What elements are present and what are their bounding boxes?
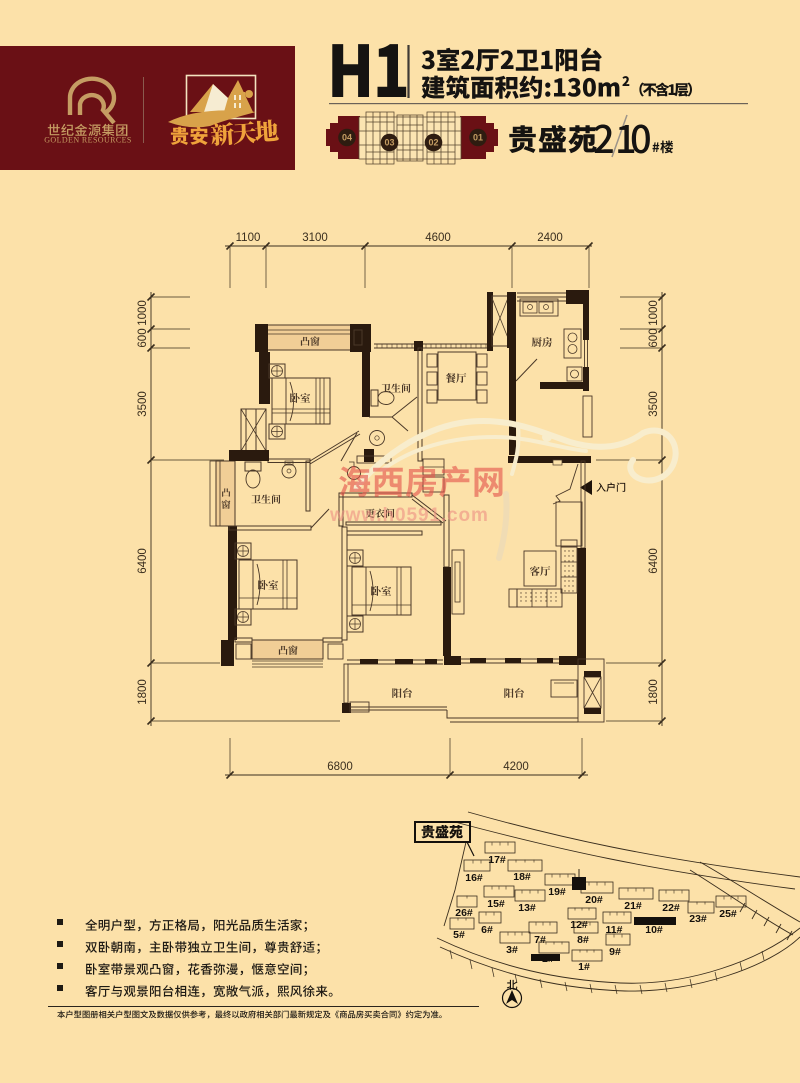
svg-text:1000: 1000 bbox=[137, 300, 149, 326]
svg-text:3100: 3100 bbox=[302, 232, 328, 244]
svg-text:16#: 16# bbox=[465, 872, 483, 884]
svg-text:600: 600 bbox=[648, 328, 660, 347]
svg-text:2400: 2400 bbox=[537, 232, 563, 244]
svg-text:www.h0591.com: www.h0591.com bbox=[329, 505, 489, 526]
svg-text:1800: 1800 bbox=[137, 679, 149, 705]
svg-text:1#: 1# bbox=[578, 961, 590, 973]
svg-text:600: 600 bbox=[137, 328, 149, 347]
svg-text:13#: 13# bbox=[518, 902, 536, 914]
svg-text:02: 02 bbox=[428, 138, 438, 148]
svg-text:3500: 3500 bbox=[648, 391, 660, 417]
svg-text:9#: 9# bbox=[609, 946, 621, 958]
svg-text:20#: 20# bbox=[585, 894, 603, 906]
svg-text:19#: 19# bbox=[548, 886, 566, 898]
svg-text:10#: 10# bbox=[645, 924, 663, 936]
svg-text:21#: 21# bbox=[624, 900, 642, 912]
svg-text:17#: 17# bbox=[488, 854, 506, 866]
svg-text:1100: 1100 bbox=[236, 232, 261, 244]
svg-text:2#: 2# bbox=[542, 953, 554, 965]
svg-text:1000: 1000 bbox=[648, 300, 660, 326]
svg-text:6400: 6400 bbox=[648, 548, 660, 574]
svg-text:22#: 22# bbox=[662, 902, 680, 914]
svg-text:6#: 6# bbox=[481, 924, 493, 936]
svg-text:12#: 12# bbox=[570, 919, 588, 931]
svg-text:7#: 7# bbox=[534, 934, 546, 946]
svg-text:26#: 26# bbox=[455, 907, 473, 919]
svg-text:03: 03 bbox=[384, 138, 394, 148]
svg-text:25#: 25# bbox=[719, 908, 737, 920]
svg-text:6800: 6800 bbox=[327, 761, 353, 773]
svg-text:3500: 3500 bbox=[137, 391, 149, 417]
svg-text:4200: 4200 bbox=[503, 761, 529, 773]
svg-text:4600: 4600 bbox=[425, 232, 451, 244]
svg-text:18#: 18# bbox=[513, 871, 531, 883]
svg-text:6400: 6400 bbox=[137, 548, 149, 574]
svg-text:3#: 3# bbox=[506, 944, 518, 956]
svg-text:GOLDEN RESOURCES: GOLDEN RESOURCES bbox=[44, 136, 132, 145]
svg-text:5#: 5# bbox=[453, 929, 465, 941]
svg-text:04: 04 bbox=[342, 133, 352, 143]
svg-text:8#: 8# bbox=[577, 934, 589, 946]
svg-text:15#: 15# bbox=[487, 898, 505, 910]
svg-text:23#: 23# bbox=[689, 913, 707, 925]
svg-text:1800: 1800 bbox=[648, 679, 660, 705]
svg-text:01: 01 bbox=[473, 133, 483, 143]
